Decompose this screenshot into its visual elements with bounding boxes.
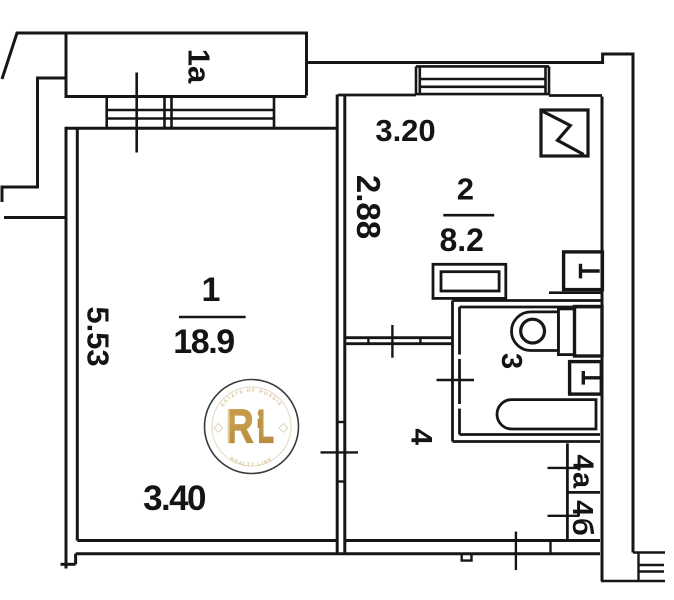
svg-text:1a: 1a xyxy=(182,49,217,84)
svg-text:4a: 4a xyxy=(567,454,599,489)
svg-text:5.53: 5.53 xyxy=(81,306,116,366)
svg-text:2.88: 2.88 xyxy=(350,175,387,239)
svg-text:2: 2 xyxy=(457,172,474,207)
svg-text:8.2: 8.2 xyxy=(439,222,483,258)
svg-text:4: 4 xyxy=(405,428,438,445)
svg-text:1: 1 xyxy=(202,271,221,309)
svg-text:R: R xyxy=(226,399,254,452)
svg-text:4б: 4б xyxy=(566,500,598,537)
svg-text:18.9: 18.9 xyxy=(173,323,234,361)
svg-text:3: 3 xyxy=(495,353,527,369)
svg-text:3.20: 3.20 xyxy=(375,113,435,148)
svg-text:3.40: 3.40 xyxy=(143,479,206,518)
